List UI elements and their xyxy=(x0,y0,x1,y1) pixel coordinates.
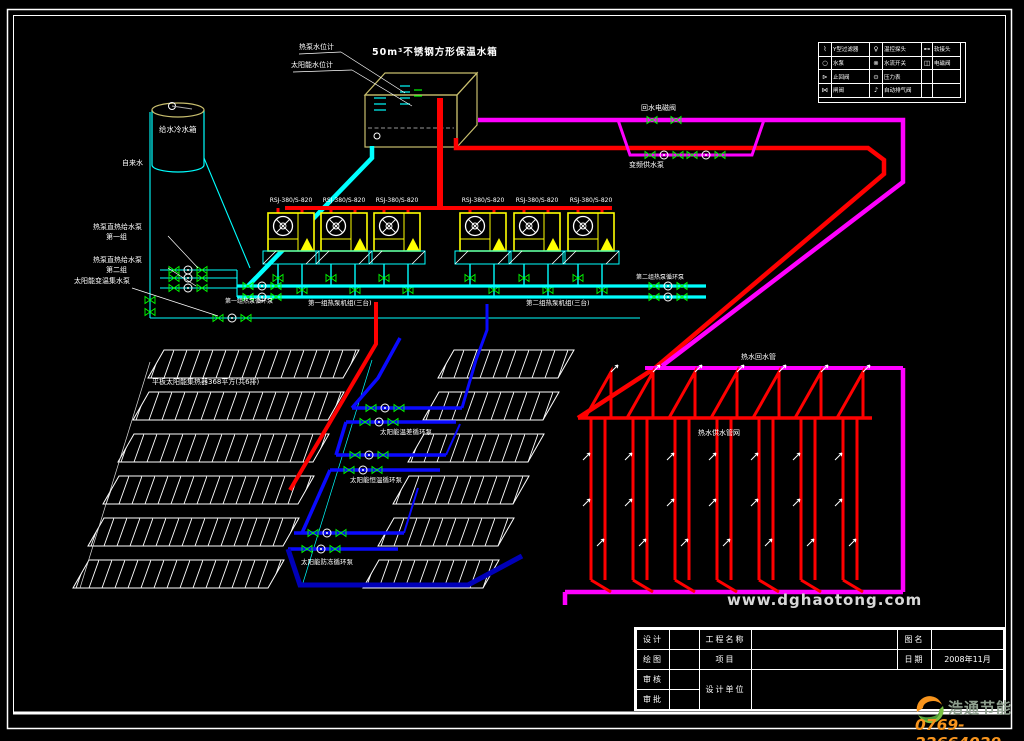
hp-model-5: RSJ-380/S-820 xyxy=(510,198,564,205)
tb-approve-value xyxy=(669,689,700,710)
tb-date-label: 日期 xyxy=(897,649,932,670)
solar-pump-c-label: 太阳能恒温循环泵 xyxy=(350,477,402,484)
legend-symbol: ♪ xyxy=(870,84,883,98)
tb-design-unit-label: 设计单位 xyxy=(699,669,752,710)
tb-design-label: 设计 xyxy=(636,629,670,650)
legend-label: 软接头 xyxy=(933,43,961,57)
tb-project-name-label: 工程名称 xyxy=(699,629,752,650)
gauge-hp-label: 热泵水位计 xyxy=(299,44,334,52)
legend-table: ⌇ Y型过滤器 ♀ 温控探头 ⊷ 软接头 ○ 水泵 ⊗ 水流开关 ◫ 电磁阀 ⊳… xyxy=(818,42,966,103)
tb-check-value xyxy=(669,669,700,690)
cold-water-tank xyxy=(145,103,250,319)
tb-drawing-name-label: 图名 xyxy=(897,629,932,650)
tb-design-value xyxy=(669,629,700,650)
watermark: www.dghaotong.com xyxy=(727,591,922,609)
legend-label xyxy=(933,70,961,84)
g1-units-label: 第一组热泵机组(三台) xyxy=(308,300,372,307)
tb-check-label: 审核 xyxy=(636,669,670,690)
tb-project-name-value xyxy=(751,629,898,650)
legend-label: 水流开关 xyxy=(883,57,922,71)
g2-pump-label: 第二组热泵循环泵 xyxy=(636,275,684,282)
legend-label: 压力表 xyxy=(883,70,922,84)
hp-model-6: RSJ-380/S-820 xyxy=(564,198,618,205)
legend-symbol xyxy=(922,70,933,84)
return-pipe-label: 热水回水管 xyxy=(741,354,776,362)
logo-brand-text: 浩通节能 xyxy=(948,697,1012,718)
legend-label: 水泵 xyxy=(832,57,870,71)
legend-label: Y型过滤器 xyxy=(832,43,870,57)
hp-model-1: RSJ-380/S-820 xyxy=(264,198,318,205)
supply-network-label: 热水供水管网 xyxy=(698,430,740,438)
hot-water-network xyxy=(578,365,872,592)
cad-drawing-canvas: 50m³不锈钢方形保温水箱 热泵水位计 太阳能水位计 给水冷水箱 自来水 热泵直… xyxy=(0,0,1024,741)
tb-drawing-name-value xyxy=(931,629,1004,650)
solar-circulation-pipes xyxy=(288,304,487,549)
legend-symbol: ⊗ xyxy=(870,57,883,71)
legend-symbol: ⋈ xyxy=(819,84,832,98)
legend-label: 自动排气阀 xyxy=(883,84,922,98)
tb-approve-label: 审批 xyxy=(636,689,670,710)
tb-date-value: 2008年11月 xyxy=(931,649,1004,670)
legend-symbol: ⊳ xyxy=(819,70,832,84)
hp-model-2: RSJ-380/S-820 xyxy=(317,198,371,205)
hp-model-4: RSJ-380/S-820 xyxy=(456,198,510,205)
solar-feed-pump-label: 太阳能变温集水泵 xyxy=(74,278,130,286)
tap-water-label: 自来水 xyxy=(122,160,143,168)
tb-draw-label: 绘图 xyxy=(636,649,670,670)
feed-pump1-group: 第一组 xyxy=(106,234,127,242)
feed-pump2-label: 热泵直热给水泵 xyxy=(93,257,142,265)
legend-symbol: ○ xyxy=(819,57,832,71)
cold-tank-label: 给水冷水箱 xyxy=(159,126,197,134)
legend-symbol: ♀ xyxy=(870,43,883,57)
logo-phone: 0769-22664029 xyxy=(915,716,1024,741)
solar-pump-t-label: 太阳能温差循环泵 xyxy=(380,429,432,436)
feed-pump1-label: 热泵直热给水泵 xyxy=(93,224,142,232)
legend-label: 电磁阀 xyxy=(933,57,961,71)
feed-pump2-group: 第二组 xyxy=(106,267,127,275)
vf-pump-label: 变频供水泵 xyxy=(629,162,664,170)
legend-symbol xyxy=(922,84,933,98)
legend-symbol: ⊷ xyxy=(922,43,933,57)
solenoid-valve-label: 回水电磁阀 xyxy=(641,105,676,113)
tb-draw-value xyxy=(669,649,700,670)
legend-symbol: ⊙ xyxy=(870,70,883,84)
return-loop-fittings xyxy=(645,117,725,160)
g1-pump-label: 第一组热泵循环泵 xyxy=(225,299,273,306)
tb-project-label: 项目 xyxy=(699,649,752,670)
legend-label: 止回阀 xyxy=(832,70,870,84)
legend-label: 闸阀 xyxy=(832,84,870,98)
collector-area-label: 平板太阳能集热器368平方(共6排) xyxy=(152,379,259,387)
hp-model-3: RSJ-380/S-820 xyxy=(370,198,424,205)
legend-label: 温控探头 xyxy=(883,43,922,57)
gauge-solar-label: 太阳能水位计 xyxy=(291,62,333,70)
tb-project-value xyxy=(751,649,898,670)
solar-pump-f-label: 太阳能防冻循环泵 xyxy=(301,559,353,566)
legend-label xyxy=(933,84,961,98)
legend-symbol: ◫ xyxy=(922,57,933,71)
g2-units-label: 第二组热泵机组(三台) xyxy=(526,300,590,307)
tank-title: 50m³不锈钢方形保温水箱 xyxy=(372,48,498,58)
legend-symbol: ⌇ xyxy=(819,43,832,57)
